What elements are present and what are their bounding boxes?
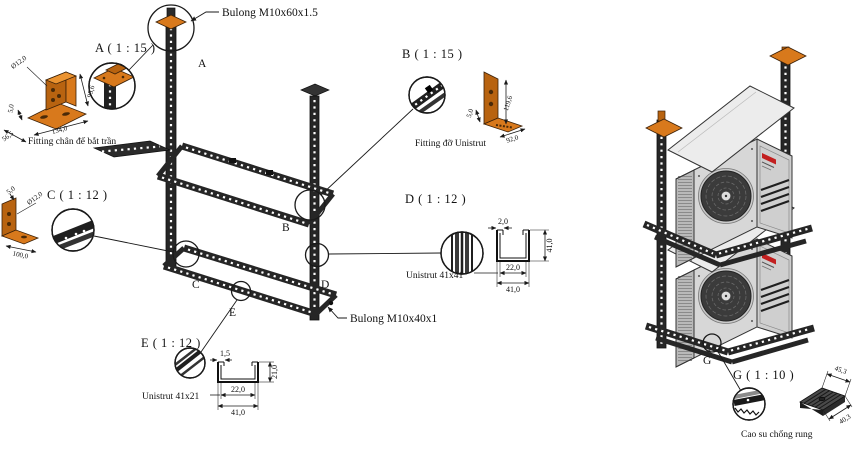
ceiling-fitting-right <box>301 84 329 96</box>
detail-c-dim-length: 100,0 <box>12 249 30 260</box>
detail-d-dim-height: 41,0 <box>545 239 554 253</box>
detail-b-bracket: 119,6 5,0 92,0 <box>465 72 525 145</box>
detail-a-dim-thickness: 5,0 <box>6 103 15 113</box>
detail-e: E ( 1 : 12 ) 1,5 21,0 22,0 41,0 <box>141 336 279 417</box>
detail-e-dim-inner: 22,0 <box>231 385 245 394</box>
detail-b-dim-height: 119,6 <box>502 94 515 112</box>
detail-g-dim-width: 45,3 <box>834 364 849 376</box>
detail-d-title: D ( 1 : 12 ) <box>405 192 466 206</box>
detail-a-bracket: Ø12,0 95,6 5,0 56,5 134,0 <box>1 54 97 143</box>
detail-d-dim-width: 41,0 <box>506 285 520 294</box>
detail-b-dim-thickness: 5,0 <box>465 107 476 118</box>
detail-d-caption: Unistrut 41x41 <box>406 271 464 281</box>
detail-g-dim-depth: 40,3 <box>838 412 853 426</box>
detail-b-title: B ( 1 : 15 ) <box>402 47 463 61</box>
detail-g-pad: 45,3 40,3 <box>800 364 853 426</box>
detail-g-caption: Cao su chống rung <box>741 429 813 440</box>
leader-d <box>329 253 441 254</box>
marker-b: B <box>282 222 290 234</box>
detail-c-dim-thickness: 5,0 <box>5 184 17 196</box>
marker-d: D <box>321 279 329 291</box>
detail-e-dim-height: 21,0 <box>270 365 279 379</box>
detail-g-title: G ( 1 : 10 ) <box>733 368 794 382</box>
ceiling-plate-left <box>646 119 682 137</box>
leader-b <box>321 109 413 195</box>
detail-d-dim-inner: 22,0 <box>506 263 520 272</box>
ceiling-fitting-left <box>156 15 186 29</box>
detail-a-dim-depth: 56,5 <box>1 129 16 143</box>
detail-e-section: 1,5 21,0 22,0 41,0 Unistrut 41x21 <box>142 349 279 417</box>
leader-e <box>201 300 237 352</box>
upper-shelf <box>158 146 333 224</box>
marker-c: C <box>192 279 200 291</box>
bolt-mid-leader <box>328 307 347 318</box>
detail-a-title: A ( 1 : 15 ) <box>95 41 156 55</box>
detail-d-dim-lip: 2,0 <box>498 217 508 226</box>
detail-d: D ( 1 : 12 ) 2,0 41,0 22 <box>405 192 554 294</box>
bolt-mid-label: Bulong M10x40x1 <box>350 313 437 325</box>
detail-c-title: C ( 1 : 12 ) <box>47 188 108 202</box>
bolt-top-label: Bulong M10x60x1.5 <box>222 7 318 19</box>
detail-g: G ( 1 : 10 ) 45,3 40,3 <box>733 364 853 440</box>
marker-g: G <box>703 355 711 367</box>
detail-a-dim-hole: Ø12,0 <box>9 54 28 71</box>
hanging-frame-assembly: A B C D E Bulong M10x60x1.5 Bulong M10x4… <box>94 5 441 352</box>
detail-d-view <box>452 232 472 274</box>
marker-e: E <box>229 307 236 319</box>
detail-c-dim-hole: Ø12,0 <box>25 190 44 207</box>
marker-a: A <box>198 58 207 70</box>
detail-b: B ( 1 : 15 ) 119,6 5,0 92,0 Fitting đỡ U… <box>402 47 525 149</box>
detail-b-caption: Fitting đỡ Unistrut <box>415 139 486 149</box>
detail-c: C ( 1 : 12 ) 5,0 Ø12,0 100,0 <box>2 184 108 260</box>
detail-e-caption: Unistrut 41x21 <box>142 392 200 402</box>
detail-e-dim-lip: 1,5 <box>220 349 230 358</box>
bolt-top-leader <box>191 12 219 21</box>
detail-c-bracket: 5,0 Ø12,0 100,0 <box>2 184 45 260</box>
ceiling-plate-right <box>770 47 806 65</box>
condenser-stack-assembly: G <box>644 47 814 391</box>
shelf-bolt <box>329 301 333 305</box>
detail-a-caption: Fitting chân đế bắt trần <box>28 136 116 147</box>
leader-c <box>94 236 173 252</box>
detail-e-dim-width: 41,0 <box>231 408 245 417</box>
detail-a: A ( 1 : 15 ) Ø12,0 95,6 5,0 <box>1 41 156 147</box>
technical-drawing: A B C D E Bulong M10x60x1.5 Bulong M10x4… <box>0 0 855 449</box>
